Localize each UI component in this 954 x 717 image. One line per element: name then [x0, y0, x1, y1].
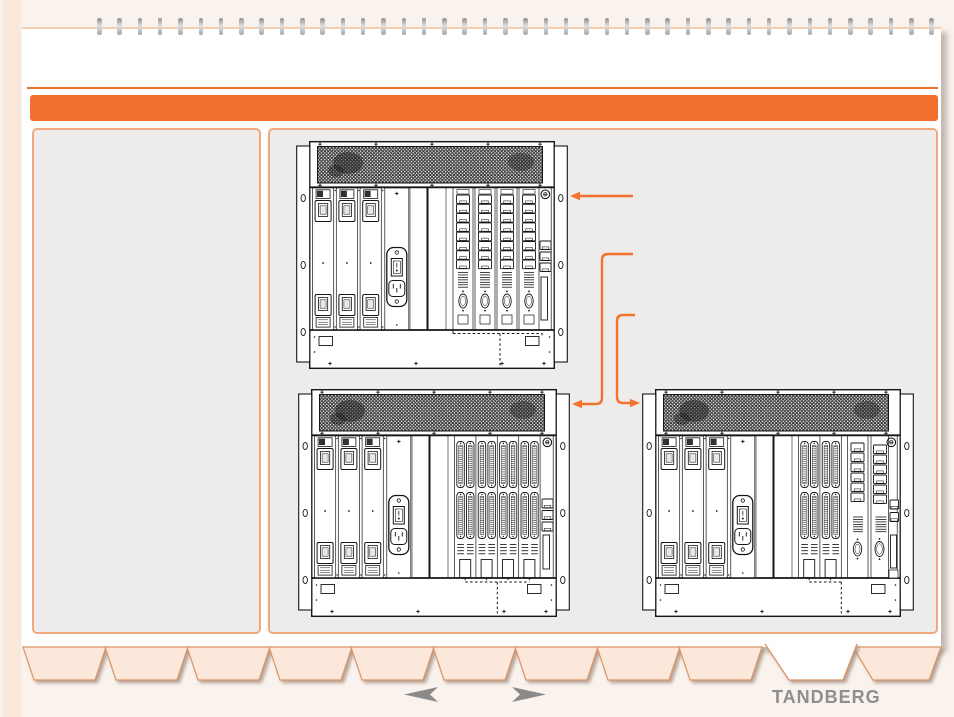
page-tabs-strip [15, 645, 945, 690]
binding-ring [178, 18, 183, 35]
next-page-button[interactable] [512, 687, 546, 702]
chassis-svg [296, 141, 568, 369]
binding-ring [97, 18, 102, 35]
binding-ring [544, 18, 549, 35]
page-tab[interactable] [853, 647, 941, 680]
brand-logo: TANDBERG [772, 687, 922, 708]
binding-ring [138, 18, 143, 35]
binding-ring [808, 18, 813, 35]
binding-ring [320, 18, 325, 35]
page-tab[interactable] [679, 647, 762, 680]
binding-ring [564, 18, 569, 35]
binder-spine-strip [3, 0, 21, 717]
rack-chassis-diagram-bottom-right [642, 389, 914, 617]
binding-ring [828, 18, 833, 35]
rack-chassis-diagram-bottom-left [298, 389, 570, 617]
binding-ring [442, 18, 447, 35]
binding-ring [280, 18, 285, 35]
binding-ring [645, 18, 650, 35]
binding-ring [929, 18, 934, 35]
binding-ring [686, 18, 691, 35]
binding-ring [584, 18, 589, 35]
binding-ring [787, 18, 792, 35]
binding-ring [483, 18, 488, 35]
binding-ring [219, 18, 224, 35]
binding-ring [381, 18, 386, 35]
previous-page-button[interactable] [404, 687, 438, 702]
binding-ring [665, 18, 670, 35]
binding-ring [747, 18, 752, 35]
page-tab[interactable] [269, 647, 352, 680]
binding-ring [868, 18, 873, 35]
binding-ring [117, 18, 122, 35]
binding-ring [503, 18, 508, 35]
binding-ring [767, 18, 772, 35]
chassis-svg [642, 389, 914, 617]
manual-page: TANDBERG [0, 0, 954, 717]
page-tab[interactable] [187, 647, 270, 680]
left-arrow-icon [404, 687, 438, 702]
right-arrow-icon [512, 687, 546, 702]
binding-ring [909, 18, 914, 35]
binding-ring [158, 18, 163, 35]
binding-ring [605, 18, 610, 35]
binding-ring [402, 18, 407, 35]
page-tab[interactable] [597, 647, 680, 680]
binding-ring [706, 18, 711, 35]
page-tab[interactable] [515, 647, 598, 680]
binding-ring [625, 18, 630, 35]
binding-ring [341, 18, 346, 35]
header-rule [27, 87, 938, 89]
binding-ring [848, 18, 853, 35]
binding-ring [422, 18, 427, 35]
binding-ring [361, 18, 366, 35]
page-tab[interactable] [433, 647, 516, 680]
page-tab[interactable] [105, 647, 188, 680]
binding-ring [300, 18, 305, 35]
title-banner [30, 95, 938, 121]
binding-ring [199, 18, 204, 35]
binding-ring [523, 18, 528, 35]
binding-ring [239, 18, 244, 35]
chassis-svg [298, 389, 570, 617]
page-tab[interactable] [23, 647, 106, 680]
page-tab[interactable] [351, 647, 434, 680]
binding-ring [726, 18, 731, 35]
binding-ring [259, 18, 264, 35]
binding-ring [889, 18, 894, 35]
sidebar-panel [32, 128, 261, 634]
binding-ring [462, 18, 467, 35]
rack-chassis-diagram-top [296, 141, 568, 369]
active-page-tab[interactable] [765, 644, 857, 680]
